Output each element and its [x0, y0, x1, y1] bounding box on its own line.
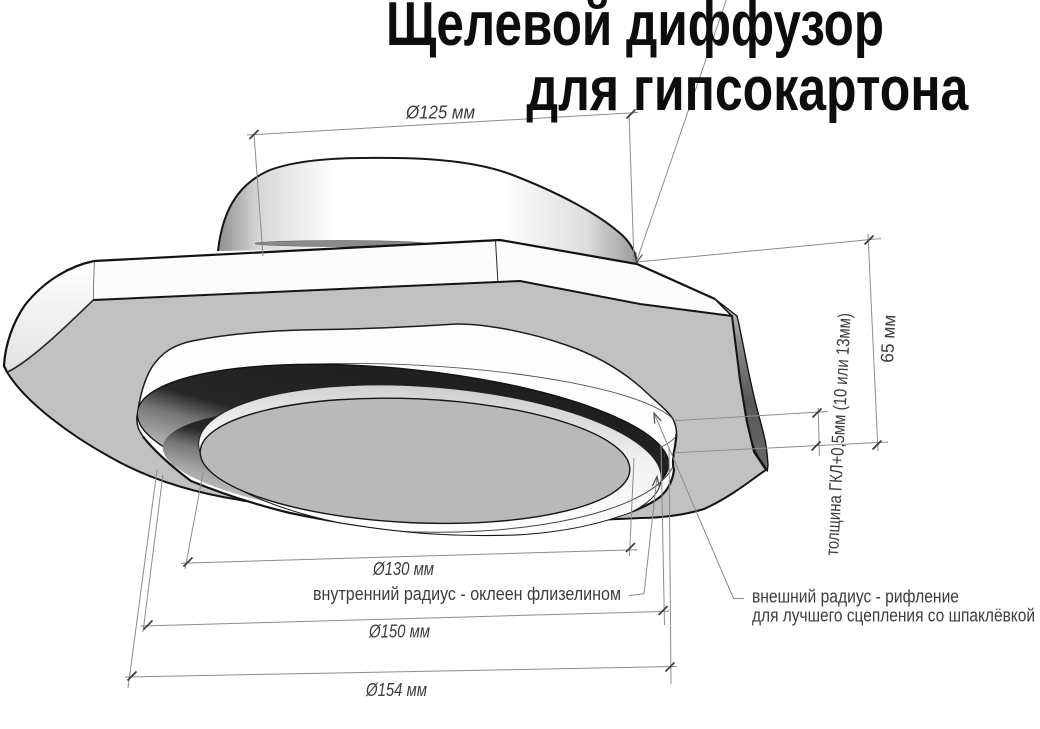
svg-text:для гипсокартона: для гипсокартона: [526, 55, 968, 124]
svg-text:65 мм: 65 мм: [877, 314, 899, 363]
svg-text:Ø130 мм: Ø130 мм: [372, 559, 434, 579]
svg-text:внутренний радиус - оклеен фли: внутренний радиус - оклеен флизелином: [313, 584, 621, 604]
svg-text:Щелевой диффузор: Щелевой диффузор: [386, 0, 884, 59]
svg-text:для лучшего сцепления со шпакл: для лучшего сцепления со шпаклёвкой: [752, 606, 1035, 626]
svg-text:Ø125 мм: Ø125 мм: [405, 103, 475, 123]
svg-text:Ø150 мм: Ø150 мм: [368, 622, 430, 642]
svg-text:внешний радиус - рифление: внешний радиус - рифление: [752, 587, 959, 607]
svg-text:Ø154 мм: Ø154 мм: [365, 680, 427, 700]
